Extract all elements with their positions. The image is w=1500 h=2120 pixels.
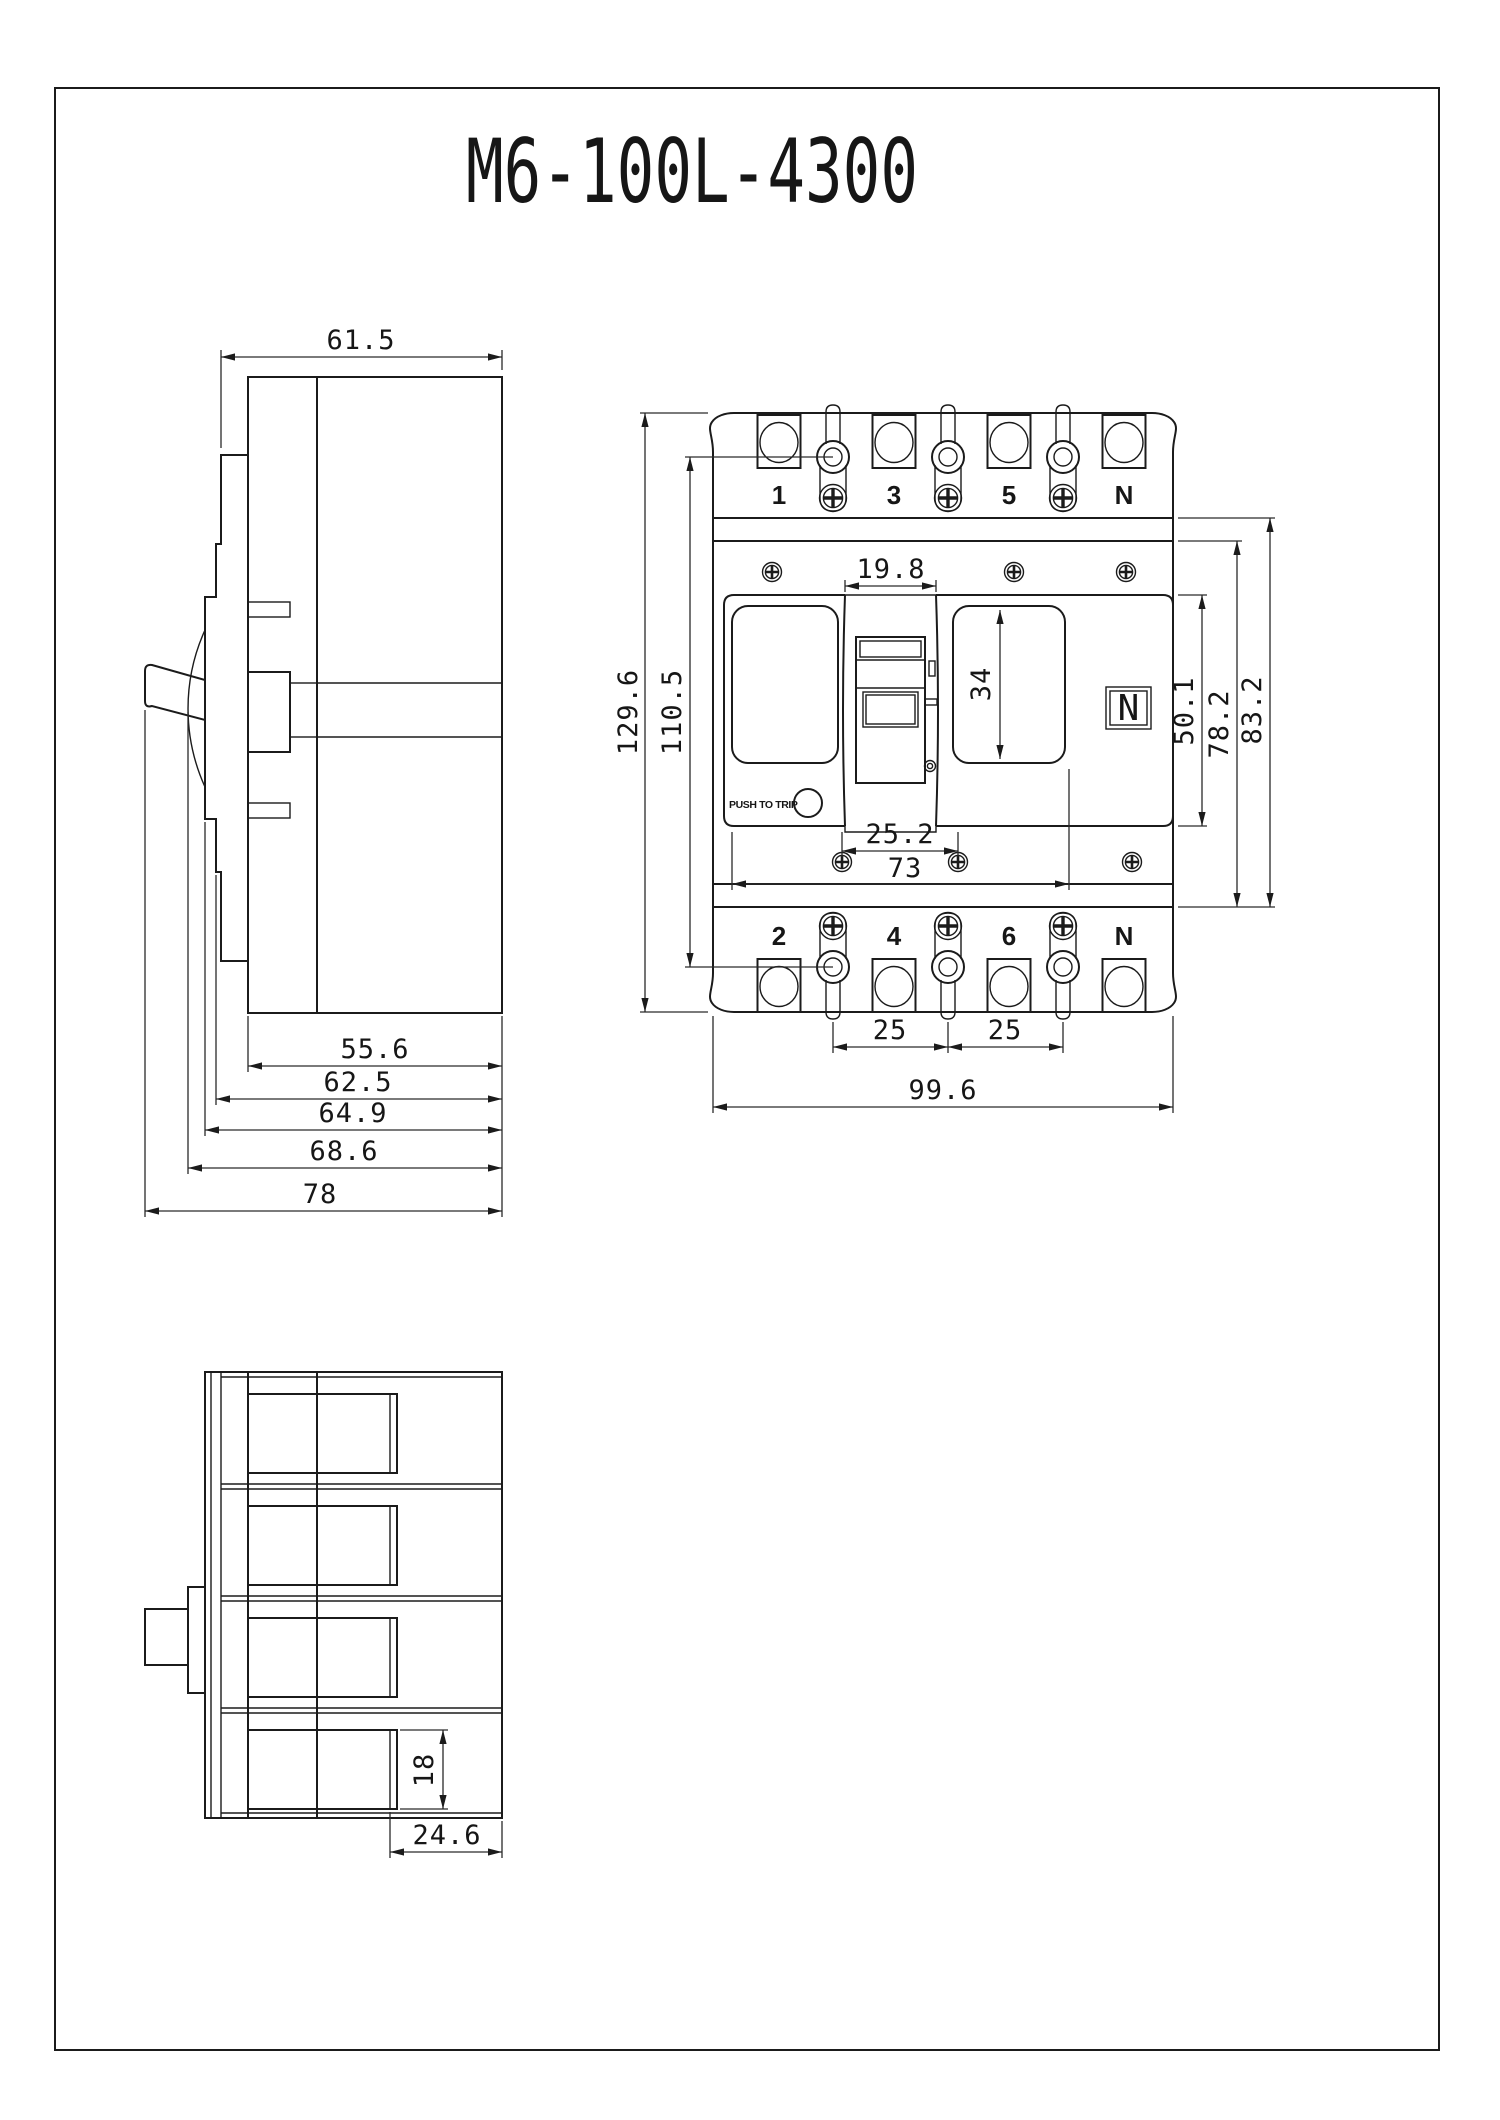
toggle-handle xyxy=(856,637,937,783)
pole-label-n-bottom: N xyxy=(1115,921,1134,951)
terminal-hole xyxy=(873,959,916,1012)
dim-screw-pitch: 25.2 xyxy=(842,819,958,857)
on-indicator-slot xyxy=(929,661,935,676)
ring-lug xyxy=(932,913,964,1020)
dim-text-34: 34 xyxy=(966,667,997,702)
dim-text-25a: 25 xyxy=(873,1015,908,1046)
pole-label-1: 1 xyxy=(772,480,786,510)
terminal-hole xyxy=(1103,415,1146,468)
top-terminal-row: 1 3 5 N xyxy=(758,405,1146,512)
ring-lug xyxy=(817,405,849,512)
pole-label-n-top: N xyxy=(1115,480,1134,510)
neutral-letter: N xyxy=(1118,688,1140,729)
pole-label-3: 3 xyxy=(887,480,901,510)
dim-text-62-5: 62.5 xyxy=(323,1067,392,1098)
dim-text-55-6: 55.6 xyxy=(340,1034,409,1065)
dim-text-61-5: 61.5 xyxy=(326,325,395,356)
terminal-slot-3 xyxy=(248,1618,397,1697)
dim-front-width: 99.6 xyxy=(713,1016,1173,1113)
dim-text-25-2: 25.2 xyxy=(865,819,934,850)
terminal-hole xyxy=(873,415,916,468)
dim-text-129-6: 129.6 xyxy=(613,669,644,755)
cad-drawing: M6-100L-4300 61.5 xyxy=(0,0,1500,2120)
terminal-hole xyxy=(758,415,801,468)
dim-recess-height: 34 xyxy=(966,610,1000,759)
dim-handle-width: 19.8 xyxy=(845,554,936,592)
label-recess-left xyxy=(732,606,838,763)
well-screw xyxy=(925,761,936,772)
front-view: 1 3 5 N 2 4 6 N xyxy=(613,405,1275,1113)
push-to-trip-button xyxy=(794,789,822,817)
dim-text-64-9: 64.9 xyxy=(318,1098,387,1129)
dim-text-78-2: 78.2 xyxy=(1204,689,1235,758)
bottom-toggle-handle xyxy=(145,1609,188,1665)
ring-lug xyxy=(1047,913,1079,1020)
handle-mount-plate xyxy=(188,1587,205,1693)
dim-text-110-5: 110.5 xyxy=(657,669,688,755)
ring-lug xyxy=(1047,405,1079,512)
handle-swing-arc xyxy=(188,630,205,787)
dim-text-73: 73 xyxy=(888,853,923,884)
escutcheon-panel: PUSH TO TRIP N xyxy=(724,595,1173,832)
dim-text-24-6: 24.6 xyxy=(412,1820,481,1851)
dim-side-width: 61.5 xyxy=(221,325,502,448)
sheet-border xyxy=(55,88,1439,2050)
pole-label-4: 4 xyxy=(887,921,902,951)
dim-text-19-8: 19.8 xyxy=(856,554,925,585)
ring-lug xyxy=(817,913,849,1020)
terminal-hole xyxy=(988,959,1031,1012)
bottom-view: 18 24.6 xyxy=(145,1372,502,1858)
pole-label-2: 2 xyxy=(772,921,786,951)
dim-text-18: 18 xyxy=(409,1753,440,1788)
dim-text-50-1: 50.1 xyxy=(1169,676,1200,745)
side-toggle-handle xyxy=(145,665,205,720)
terminal-slot-4 xyxy=(248,1730,397,1809)
drawing-sheet: M6-100L-4300 61.5 xyxy=(0,0,1500,2120)
dim-text-83-2: 83.2 xyxy=(1237,675,1268,744)
drawing-title: M6-100L-4300 xyxy=(466,120,918,223)
side-view: 61.5 55.6 62.5 64.9 68.6 78 xyxy=(145,325,502,1217)
terminal-hole xyxy=(988,415,1031,468)
dim-escutcheon-height: 50.1 xyxy=(1169,595,1207,826)
terminal-slot-1 xyxy=(248,1394,397,1473)
side-view-body xyxy=(145,377,502,1013)
pole-label-5: 5 xyxy=(1002,480,1016,510)
push-to-trip-label: PUSH TO TRIP xyxy=(729,799,798,811)
pole-label-6: 6 xyxy=(1002,921,1016,951)
neutral-mark: N xyxy=(1106,687,1151,729)
terminal-hole xyxy=(1103,959,1146,1012)
dim-text-25b: 25 xyxy=(988,1015,1023,1046)
bottom-terminal-row: 2 4 6 N xyxy=(758,913,1146,1020)
dim-side-chain: 55.6 62.5 64.9 68.6 78 xyxy=(145,710,502,1217)
trip-tab xyxy=(925,699,937,705)
dim-slot-height: 18 xyxy=(400,1730,448,1809)
dim-text-78: 78 xyxy=(303,1179,338,1210)
bottom-view-body xyxy=(145,1372,502,1818)
ring-lug xyxy=(932,405,964,512)
dim-text-68-6: 68.6 xyxy=(309,1136,378,1167)
dim-pole-pitch: 25 25 xyxy=(833,1015,1063,1053)
dim-front-inner-height: 110.5 xyxy=(657,457,833,967)
dim-text-99-6: 99.6 xyxy=(908,1075,977,1106)
terminal-slot-2 xyxy=(248,1506,397,1585)
